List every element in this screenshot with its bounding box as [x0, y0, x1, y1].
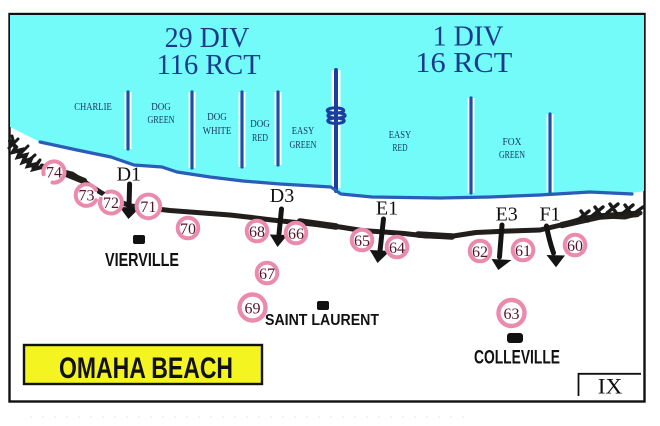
svg-text:65: 65	[354, 233, 370, 250]
svg-text:GREEN: GREEN	[148, 115, 175, 126]
svg-text:COLLEVILLE: COLLEVILLE	[474, 348, 560, 369]
svg-text:60: 60	[567, 238, 583, 255]
svg-text:OMAHA BEACH: OMAHA BEACH	[59, 352, 233, 385]
svg-text:71: 71	[140, 199, 156, 216]
svg-text:62: 62	[472, 244, 488, 261]
svg-text:72: 72	[103, 195, 119, 212]
svg-text:FOX: FOX	[503, 137, 523, 148]
svg-text:DOG: DOG	[207, 112, 227, 123]
svg-text:EASY: EASY	[389, 130, 412, 141]
svg-text:70: 70	[180, 221, 196, 238]
svg-text:RED: RED	[393, 143, 408, 154]
svg-text:VIERVILLE: VIERVILLE	[105, 250, 179, 270]
svg-text:69: 69	[245, 301, 261, 318]
svg-text:IX: IX	[598, 374, 623, 399]
svg-text:GREEN: GREEN	[290, 140, 317, 151]
svg-text:E1: E1	[376, 198, 398, 220]
svg-text:68: 68	[249, 224, 265, 241]
svg-text:DOG: DOG	[250, 119, 270, 130]
svg-text:74: 74	[46, 165, 62, 182]
svg-text:67: 67	[259, 266, 275, 283]
svg-text:73: 73	[79, 188, 95, 205]
svg-text:WHITE: WHITE	[203, 126, 232, 137]
svg-text:RED: RED	[252, 133, 268, 144]
svg-text:F1: F1	[539, 204, 560, 226]
svg-text:E3: E3	[496, 204, 518, 226]
svg-text:EASY: EASY	[292, 126, 315, 137]
svg-text:SAINT LAURENT: SAINT LAURENT	[265, 312, 379, 329]
svg-text:D3: D3	[270, 185, 294, 207]
svg-text:61: 61	[515, 243, 531, 260]
svg-text:CHARLIE: CHARLIE	[74, 102, 112, 113]
svg-text:GREEN: GREEN	[499, 150, 525, 161]
svg-text:63: 63	[504, 306, 520, 323]
svg-text:64: 64	[389, 240, 405, 257]
svg-text:DOG: DOG	[151, 102, 171, 113]
svg-text:16 RCT: 16 RCT	[415, 48, 512, 79]
svg-text:116 RCT: 116 RCT	[157, 50, 261, 81]
svg-text:66: 66	[288, 226, 304, 243]
